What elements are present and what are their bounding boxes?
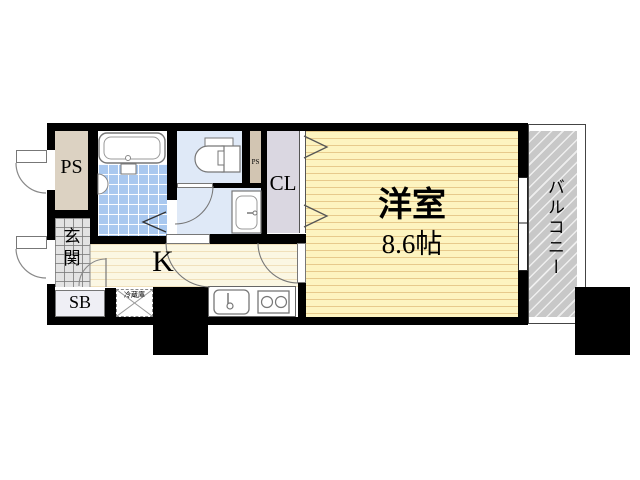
kitchen-label: K <box>143 246 183 278</box>
wall-ps-bottom <box>47 210 98 218</box>
main-room-label: 洋室 <box>306 188 518 224</box>
toilet-door-panel <box>177 183 213 188</box>
wall-washroom-bottom <box>210 234 306 244</box>
mainroom-door-panel <box>297 243 306 283</box>
wall-bottom <box>47 317 528 325</box>
wall-left-seg1 <box>47 123 55 150</box>
washroom-door-panel <box>166 234 210 244</box>
room-toilet <box>177 131 242 183</box>
shoe-box-label: SB <box>55 293 105 312</box>
main-room-size-label: 8.6帖 <box>306 230 518 258</box>
ps-small-label: PS <box>250 159 261 166</box>
room-bath-tub-zone <box>98 131 167 164</box>
floor-plan: PS 玄関 SB K 冷蔵庫 PS CL 洋室 8.6帖 バルコニー <box>0 0 640 480</box>
wall-right-lower <box>518 271 528 317</box>
kitchen-counter <box>208 286 296 317</box>
closet-label: CL <box>263 172 303 194</box>
entrance-door-arc <box>16 249 46 278</box>
wall-bath-toilet <box>167 131 177 200</box>
wall-right-upper <box>518 131 528 177</box>
pillar-right <box>575 287 630 355</box>
refrigerator-label: 冷蔵庫 <box>113 292 156 299</box>
room-kitchen-floor <box>90 244 298 287</box>
balcony-label: バルコニー <box>545 158 563 298</box>
ps-door-panel <box>16 150 47 163</box>
room-bathroom-floor <box>98 164 167 236</box>
entrance-door-panel <box>16 236 47 249</box>
wall-top <box>47 123 528 131</box>
ps-door-arc <box>16 163 46 193</box>
wall-ps-bath <box>88 131 98 218</box>
entrance-label: 玄関 <box>62 226 82 270</box>
balcony-window <box>518 177 528 271</box>
room-washroom <box>177 188 261 234</box>
ps-shaft-label: PS <box>55 157 88 178</box>
pillar-center <box>153 287 208 355</box>
wall-bath-bottom <box>93 236 167 244</box>
wall-toilet-washroom <box>213 183 267 188</box>
wall-toilet-ps <box>242 131 250 188</box>
